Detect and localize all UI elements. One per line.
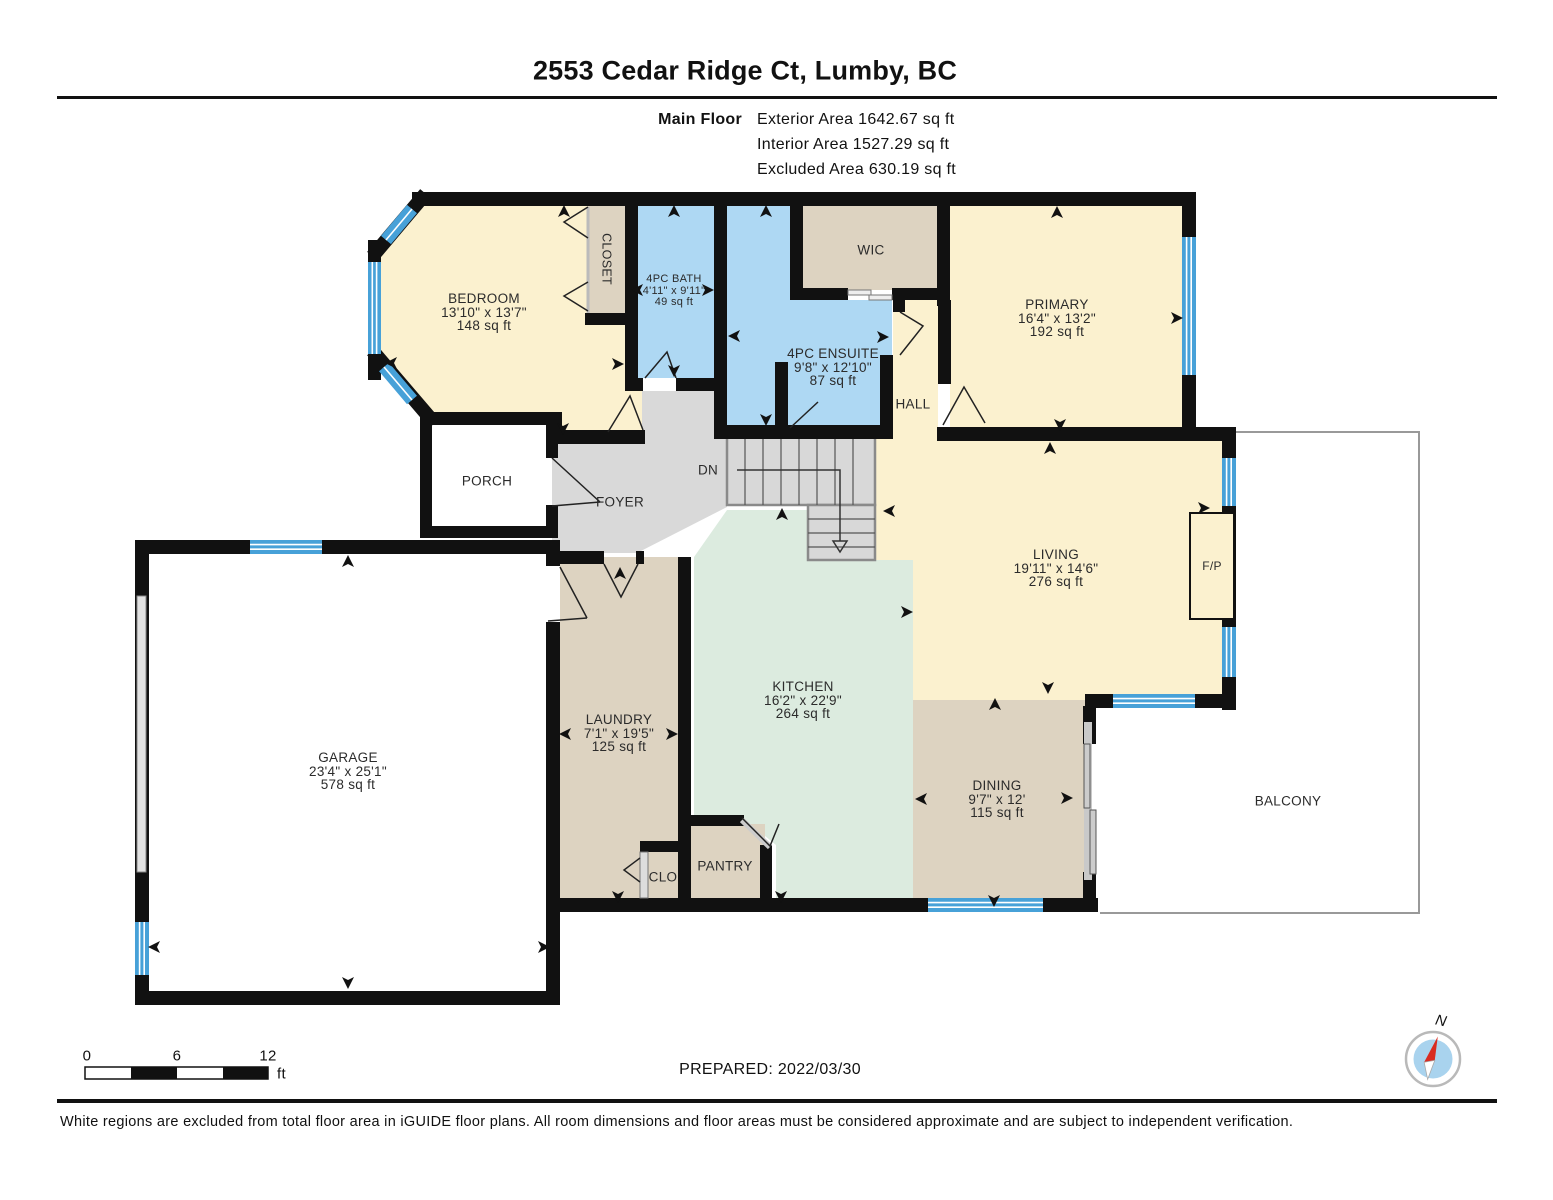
compass-rose-icon [1406,1032,1460,1086]
hall-label: HALL [896,397,931,411]
scale-bar [85,1067,268,1079]
scale-unit: ft [277,1067,286,1082]
dining-area: 115 sq ft [968,806,1025,820]
garage-name: GARAGE [309,751,387,765]
laundry-dims: 7'1" x 19'5" [584,726,654,740]
scale-tick-0: 0 [83,1049,92,1064]
dining-label: DINING 9'7" x 12' 115 sq ft [968,779,1025,820]
primary-area: 192 sq ft [1018,325,1096,339]
pantry-label: PANTRY [697,859,752,873]
stairs-dn-label: DN [698,463,718,477]
kitchen-area: 264 sq ft [764,707,842,721]
primary-dims: 16'4" x 13'2" [1018,311,1096,325]
prepared-date: PREPARED: 2022/03/30 [679,1062,861,1078]
laundry-name: LAUNDRY [584,713,654,727]
kitchen-name: KITCHEN [764,680,842,694]
closet-label: CLOSET [600,233,613,285]
header-rule [57,96,1497,99]
bath-name: 4PC BATH [643,274,706,286]
scale-tick-6: 6 [173,1049,182,1064]
disclaimer-text: White regions are excluded from total fl… [60,1115,1293,1130]
ensuite-dims: 9'8" x 12'10" [787,360,879,374]
porch-label: PORCH [462,474,512,488]
bath-label: 4PC BATH 4'11" x 9'11" 49 sq ft [643,274,706,309]
living-area: 276 sq ft [1014,575,1099,589]
bedroom-label: BEDROOM 13'10" x 13'7" 148 sq ft [441,292,527,333]
garage-area: 578 sq ft [309,778,387,792]
stat-exterior-area: Exterior Area 1642.67 sq ft [757,112,955,128]
bedroom-dims: 13'10" x 13'7" [441,305,527,319]
garage-door [137,596,146,872]
balcony-label: BALCONY [1255,794,1322,808]
living-label: LIVING 19'11" x 14'6" 276 sq ft [1014,548,1099,589]
garage-label: GARAGE 23'4" x 25'1" 578 sq ft [309,751,387,792]
fireplace-label: F/P [1202,560,1222,572]
page-title: 2553 Cedar Ridge Ct, Lumby, BC [533,58,957,85]
primary-label: PRIMARY 16'4" x 13'2" 192 sq ft [1018,298,1096,339]
primary-name: PRIMARY [1018,298,1096,312]
stat-excluded-area: Excluded Area 630.19 sq ft [757,162,956,178]
clo-label: CLO [649,870,678,884]
dining-dims: 9'7" x 12' [968,792,1025,806]
laundry-label: LAUNDRY 7'1" x 19'5" 125 sq ft [584,713,654,754]
foyer-label: FOYER [596,495,644,509]
ensuite-label: 4PC ENSUITE 9'8" x 12'10" 87 sq ft [787,347,879,388]
stat-interior-area: Interior Area 1527.29 sq ft [757,137,949,153]
floor-plan-page: 2553 Cedar Ridge Ct, Lumby, BC Main Floo… [0,0,1553,1200]
floor-plan-canvas [0,0,1553,1200]
kitchen-dims: 16'2" x 22'9" [764,693,842,707]
footer-rule [57,1099,1497,1103]
living-name: LIVING [1014,548,1099,562]
ensuite-name: 4PC ENSUITE [787,347,879,361]
laundry-area: 125 sq ft [584,740,654,754]
bedroom-area: 148 sq ft [441,319,527,333]
living-dims: 19'11" x 14'6" [1014,561,1099,575]
bath-area: 49 sq ft [643,297,706,309]
bedroom-name: BEDROOM [441,292,527,306]
dining-name: DINING [968,779,1025,793]
kitchen-label: KITCHEN 16'2" x 22'9" 264 sq ft [764,680,842,721]
garage-dims: 23'4" x 25'1" [309,764,387,778]
floor-label: Main Floor [658,112,742,128]
wic-label: WIC [857,243,884,257]
scale-tick-12: 12 [259,1049,276,1064]
ensuite-area: 87 sq ft [787,374,879,388]
